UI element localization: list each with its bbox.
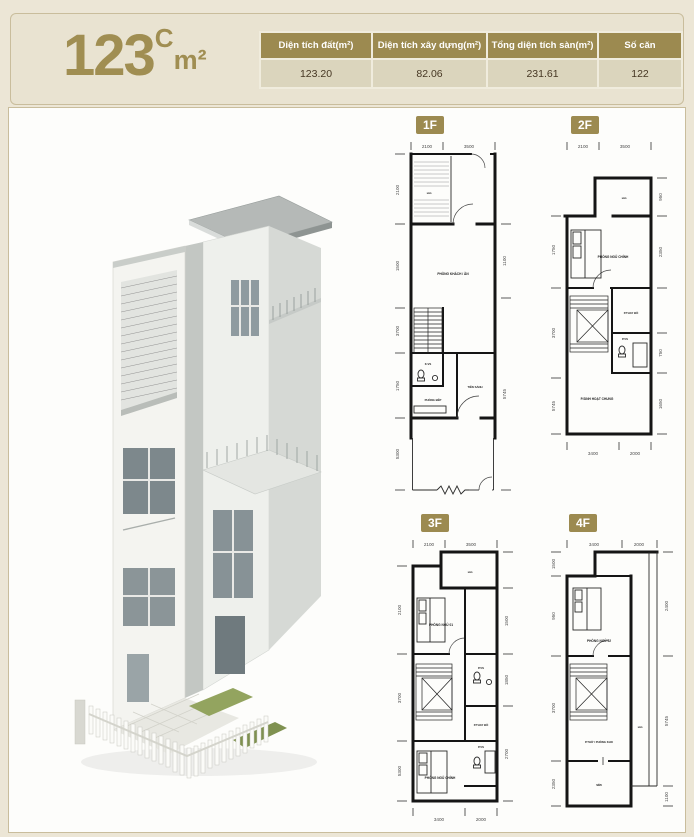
val-land-area: 123.20: [260, 59, 372, 88]
dim-label: 1750: [395, 380, 400, 391]
dim-label: 3400: [588, 451, 599, 456]
dim-label: 2350: [551, 778, 556, 789]
dim-label: 1500: [551, 558, 556, 569]
room-label: sân: [596, 783, 602, 787]
dim-label: 1100: [664, 792, 669, 802]
dim-label: 950: [551, 612, 556, 620]
bath-fixtures: [619, 343, 648, 367]
val-unit-count: 122: [598, 59, 682, 88]
spec-value-row: 123.20 82.06 231.61 122: [260, 59, 682, 88]
dim-left: 1500 950 3700 2350: [551, 552, 561, 806]
dim-label: 5745: [664, 715, 669, 726]
floorplan-1f-drawing: 2100 3500: [383, 138, 515, 506]
dim-label: 2000: [476, 817, 487, 822]
dim-right: 2400 5745 1100: [663, 552, 673, 806]
room-label: sân: [427, 191, 432, 195]
floorplan-2f-drawing: 2100 3500: [537, 138, 689, 468]
bed: [417, 598, 445, 642]
floor-badge-2f: 2F: [571, 116, 599, 134]
dim-label: 5300: [397, 765, 402, 776]
left-tower: [113, 246, 185, 730]
dim-label: 1500: [504, 615, 509, 626]
house-rendering: [27, 148, 367, 808]
dim-bottom: 3400 2000: [567, 442, 651, 456]
dim-right: 1100 5745: [501, 224, 511, 490]
room-labels: sân PHÒNG NGỦ CHÍNH P.THAY ĐỒ P.VS P.SIN…: [581, 196, 639, 401]
floor-badge-3f: 3F: [421, 514, 449, 532]
right-block: [203, 226, 321, 690]
room-label: PHÒNG NGỦ CHÍNH: [598, 254, 629, 259]
room-label: PHÒNG NGỦ CHÍNH: [425, 775, 456, 780]
dim-right: 950 2350 750 1650: [657, 178, 667, 434]
wc-fixtures: [418, 370, 438, 381]
room-label: P.VS: [478, 745, 484, 749]
floorplan-3f-drawing: 2100 3500: [385, 536, 531, 826]
room-label: PHÒNG KHÁCH / ĂN: [437, 271, 469, 276]
room-labels: PHÒNG NGỦ 02 sân P.THỜ / PHÒNG KHO sân: [585, 638, 643, 787]
brochure-page: 123Cm² Diện tích đất(m²) Diện tích xây d…: [0, 0, 694, 837]
room-labels: sân PHÒNG NGỦ 01 P.VS P.THAY ĐỒ PHÒNG NG…: [425, 570, 489, 780]
col-unit-count: Số căn: [598, 32, 682, 59]
dim-label: 3700: [551, 702, 556, 713]
dim-label: 3500: [620, 144, 631, 149]
stairs: [416, 664, 452, 720]
walls: [413, 552, 497, 801]
dim-label: 3700: [551, 327, 556, 338]
dim-label: 2100: [395, 184, 400, 195]
val-floor-area: 231.61: [487, 59, 598, 88]
floorplan-4f-drawing: 3400 2000: [537, 536, 694, 826]
col-floor-area: Tổng diện tích sàn(m²): [487, 32, 598, 59]
dim-left: 2100 1500 3700 1750 5300: [395, 154, 405, 490]
dim-label: 3400: [434, 817, 445, 822]
content-panel: 1F 2100 3500: [8, 107, 686, 833]
room-label: PHÒNG BẾP: [425, 397, 442, 402]
dim-right: 1500 1850 2700: [503, 552, 513, 801]
dim-label: 2000: [630, 451, 641, 456]
room-label: P.THAY ĐỒ: [624, 310, 639, 315]
dim-label: 750: [658, 349, 663, 357]
spec-header-row: Diện tích đất(m²) Diện tích xây dựng(m²)…: [260, 32, 682, 59]
header-banner: 123Cm² Diện tích đất(m²) Diện tích xây d…: [10, 13, 684, 105]
dim-label: 3500: [466, 542, 477, 547]
spec-table: Diện tích đất(m²) Diện tích xây dựng(m²)…: [259, 31, 683, 89]
dim-left: 1750 3700 5745: [551, 216, 561, 434]
dim-top: 2100 3500: [567, 142, 651, 150]
room-label: PHÒNG NGỦ 02: [587, 638, 611, 643]
dim-label: 2100: [397, 604, 402, 615]
stairs: [570, 296, 608, 352]
dim-label: 1850: [504, 674, 509, 685]
dim-label: 5745: [502, 388, 507, 399]
room-label: P.SINH HOẠT CHUNG: [581, 397, 614, 401]
room-label: sân: [638, 725, 643, 729]
bed: [571, 230, 601, 278]
dim-label: 3700: [397, 692, 402, 703]
col-build-area: Diện tích xây dựng(m²): [372, 32, 487, 59]
room-label: P.THỜ / PHÒNG KHO: [585, 739, 614, 744]
room-label: sân: [622, 196, 627, 200]
dim-label: 1100: [502, 256, 507, 266]
dim-label: 5300: [395, 448, 400, 459]
floorplan-1f: 1F 2100 3500: [383, 116, 523, 506]
col-land-area: Diện tích đất(m²): [260, 32, 372, 59]
dim-left: 2100 3700 5300: [397, 566, 407, 801]
dim-label: 5745: [551, 400, 556, 411]
model-variant: C: [155, 23, 174, 53]
rear-yard: [413, 438, 494, 494]
room-label: TIỀN SẢNH: [467, 384, 482, 389]
dim-label: 2100: [578, 144, 589, 149]
walls: [411, 154, 495, 438]
dim-label: 3700: [395, 325, 400, 336]
dim-label: 2100: [424, 542, 435, 547]
dim-label: 3500: [464, 144, 475, 149]
dim-label: 1500: [395, 260, 400, 271]
stairs: [570, 664, 607, 720]
room-label: P.VS: [622, 337, 628, 341]
model-unit: m²: [174, 45, 207, 75]
floor-badge-4f: 4F: [569, 514, 597, 532]
floor-badge-1f: 1F: [416, 116, 444, 134]
floorplan-3f: 3F 2100 3500: [385, 514, 535, 826]
dim-top: 3400 2000: [567, 540, 657, 548]
dim-label: 1750: [551, 244, 556, 255]
dim-top: 2100 3500: [411, 142, 495, 150]
dim-label: 2100: [422, 144, 433, 149]
dim-label: 3400: [589, 542, 600, 547]
model-number: 123: [63, 23, 154, 88]
dim-label: 2700: [504, 748, 509, 759]
floorplan-2f: 2F 2100 3500: [537, 116, 694, 468]
val-build-area: 82.06: [372, 59, 487, 88]
model-title: 123Cm²: [63, 22, 207, 89]
room-label: sân: [468, 570, 473, 574]
room-label: P.THAY ĐỒ: [474, 722, 489, 727]
dim-label: 1650: [658, 398, 663, 409]
bed2: [417, 751, 447, 793]
dim-label: 2000: [634, 542, 645, 547]
kitchen-counter: [414, 406, 446, 413]
bed: [573, 588, 601, 630]
floorplan-4f: 4F 3400 2000: [537, 514, 694, 826]
dim-label: 950: [658, 193, 663, 201]
dim-label: 2350: [658, 246, 663, 257]
recess: [185, 242, 203, 698]
dim-label: 2400: [664, 600, 669, 611]
dim-bottom: 3400 2000: [413, 808, 497, 822]
room-label: PHÒNG NGỦ 01: [429, 622, 453, 627]
dim-top: 2100 3500: [413, 540, 497, 548]
room-label: P.VS: [478, 666, 484, 670]
stairs: [414, 308, 442, 353]
room-label: K.VS: [425, 362, 432, 366]
